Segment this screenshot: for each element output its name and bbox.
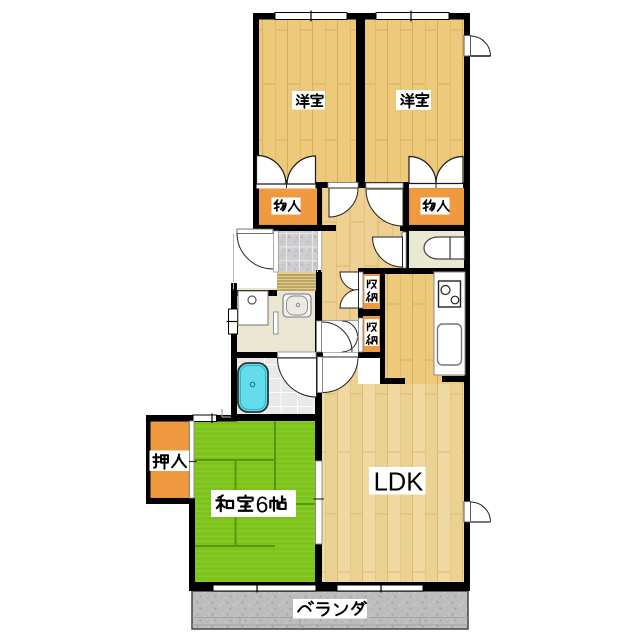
svg-text:6: 6 — [256, 492, 269, 518]
svg-text:LDK: LDK — [374, 469, 424, 497]
